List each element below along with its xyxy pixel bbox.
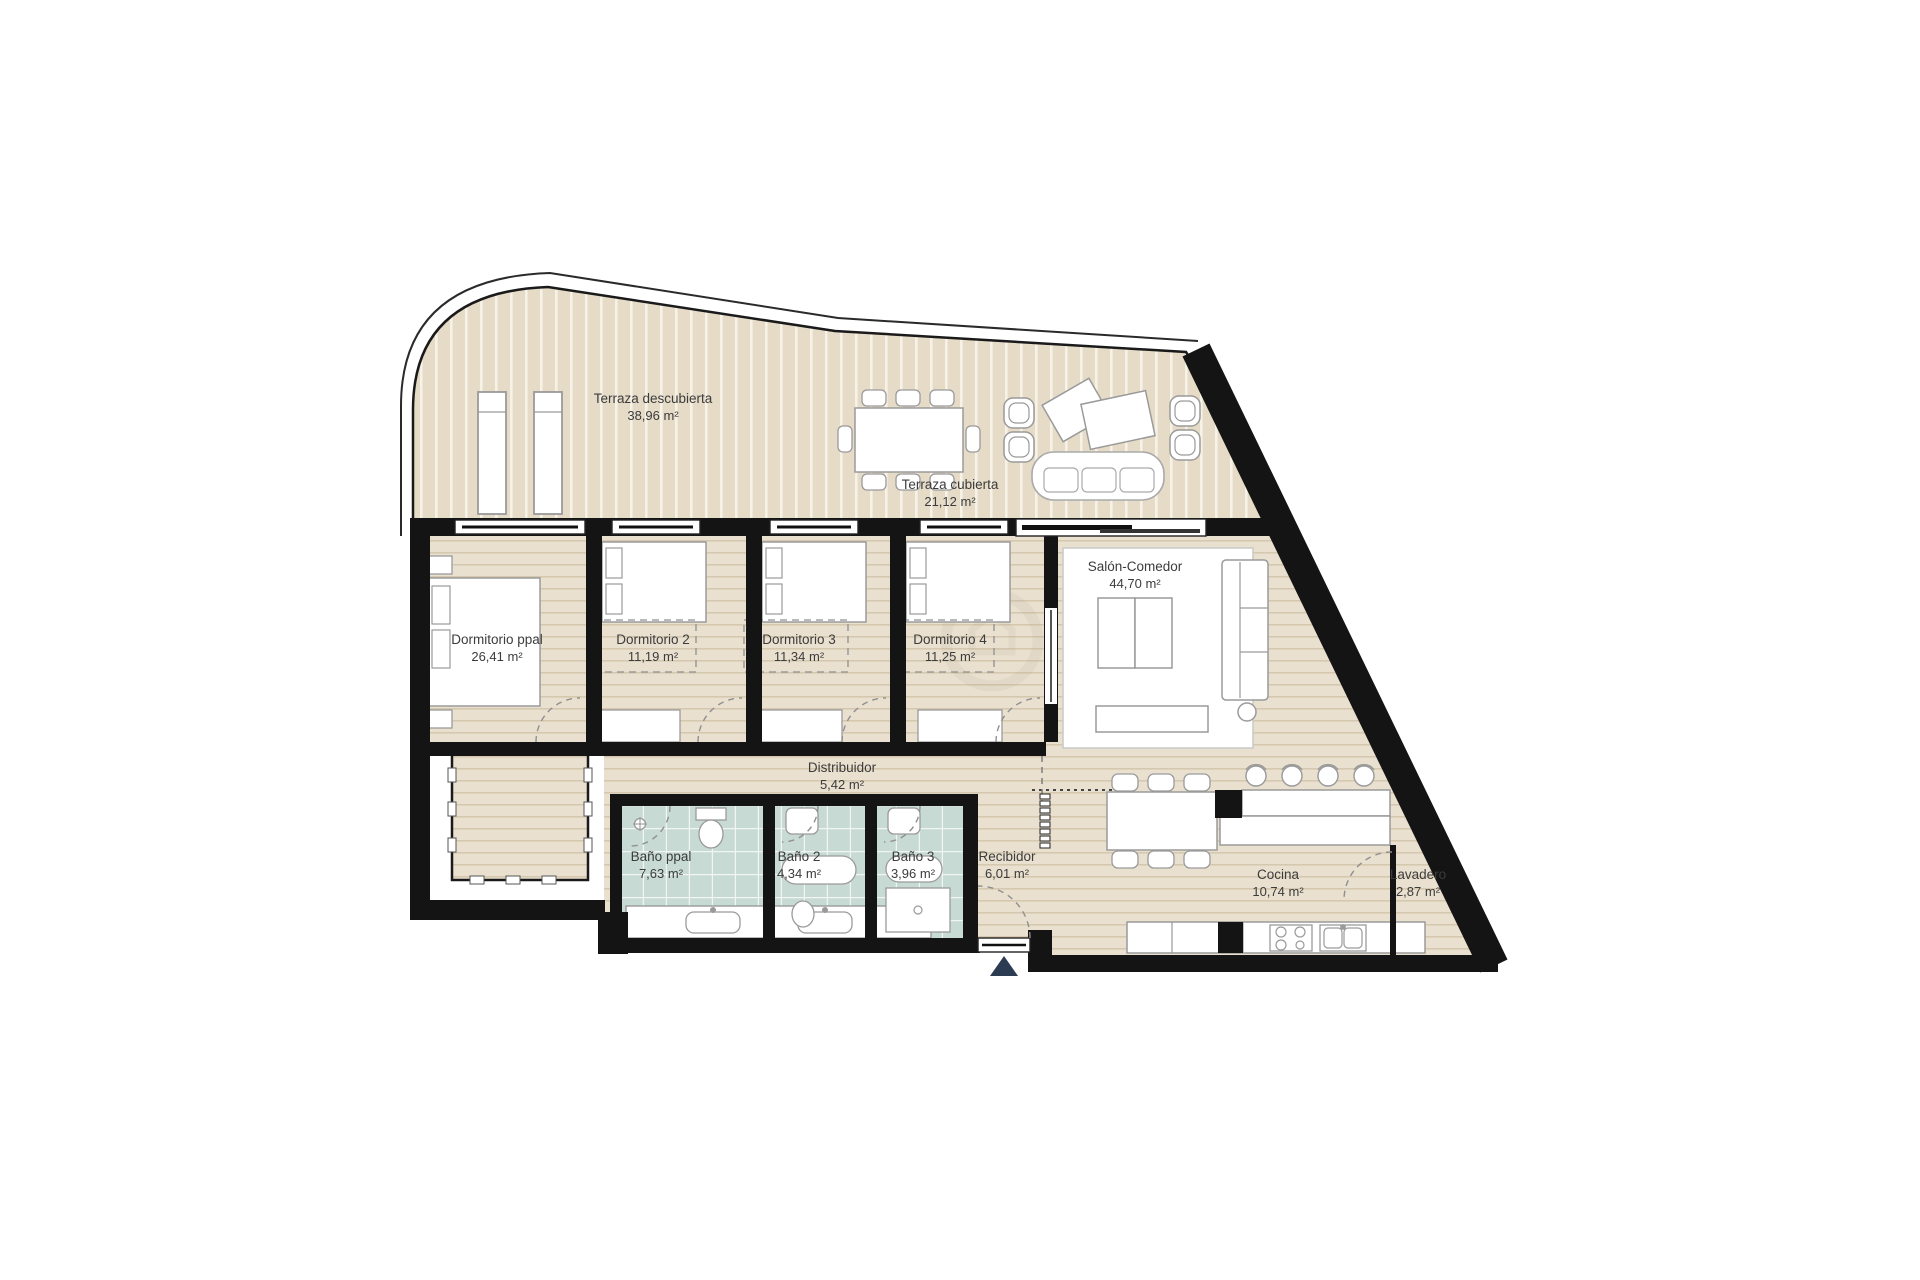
- label-dormitorio-2-name: Dormitorio 2: [616, 632, 690, 647]
- label-lavadero-area: 2,87 m²: [1396, 884, 1441, 899]
- bar-counter-top: [1242, 790, 1390, 816]
- pillow: [910, 584, 926, 614]
- pillow: [432, 586, 450, 624]
- dining-chair: [1112, 774, 1138, 791]
- sun-lounger: [534, 392, 562, 514]
- label-dormitorio-2-area: 11,19 m²: [628, 649, 679, 664]
- pillow: [606, 584, 622, 614]
- floor-plan-drawing: Terraza descubierta 38,96 m² Terraza cub…: [0, 0, 1920, 1280]
- sink-b3: [888, 808, 920, 834]
- entrance-door: [978, 938, 1030, 952]
- tv-sideboard: [1096, 706, 1208, 732]
- label-bano-2-area: 4,34 m²: [777, 866, 822, 881]
- wardrobe-d4: [918, 710, 1002, 742]
- dining-table: [1107, 792, 1217, 850]
- floor-lamp: [1238, 703, 1256, 721]
- window-d4: [920, 520, 1008, 534]
- terrace-chair: [966, 426, 980, 452]
- wall-bedrooms-bottom: [428, 742, 1046, 756]
- wall-b2-b3: [865, 806, 877, 938]
- toilet-tank: [696, 808, 726, 820]
- label-bano-3-area: 3,96 m²: [891, 866, 936, 881]
- double-vanity: [626, 906, 931, 938]
- window-d3: [770, 520, 858, 534]
- pillow: [606, 548, 622, 578]
- dining-chair: [1112, 851, 1138, 868]
- toilet-bowl: [699, 820, 723, 848]
- salon-furniture: [1063, 548, 1268, 748]
- pillow: [766, 548, 782, 578]
- sofa: [1222, 560, 1268, 700]
- courtyard: [430, 748, 604, 904]
- label-distribuidor-area: 5,42 m²: [820, 777, 865, 792]
- bar-counter: [1220, 816, 1390, 845]
- label-cocina-name: Cocina: [1257, 867, 1300, 882]
- label-lavadero-name: Lavadero: [1390, 867, 1446, 882]
- label-salon-comedor-area: 44,70 m²: [1109, 576, 1161, 591]
- label-dormitorio-4-area: 11,25 m²: [925, 649, 976, 664]
- coffee-table-right: [1135, 598, 1172, 668]
- basin: [686, 912, 740, 933]
- wall-b1-b2: [763, 806, 775, 938]
- label-terraza-cubierta-area: 21,12 m²: [924, 494, 976, 509]
- wall-ppal-d2: [586, 536, 602, 756]
- wall-d2-d3: [746, 536, 762, 756]
- label-dormitorio-ppal-name: Dormitorio ppal: [451, 632, 543, 647]
- label-distribuidor-name: Distribuidor: [808, 760, 877, 775]
- label-salon-comedor-name: Salón-Comedor: [1088, 559, 1183, 574]
- label-recibidor-name: Recibidor: [978, 849, 1036, 864]
- label-bano-ppal-name: Baño ppal: [631, 849, 692, 864]
- terrace-dining-table: [855, 408, 963, 472]
- dining-chair: [1148, 774, 1174, 791]
- label-terraza-descubierta-name: Terraza descubierta: [594, 391, 713, 406]
- courtyard-floor: [452, 750, 588, 880]
- wall-bath-left: [610, 794, 622, 938]
- wall-bath-top: [610, 794, 978, 806]
- wall-counter-block: [1218, 922, 1243, 953]
- pillow: [910, 548, 926, 578]
- label-dormitorio-ppal-area: 26,41 m²: [471, 649, 523, 664]
- toilet-b2: [792, 901, 814, 927]
- label-recibidor-area: 6,01 m²: [985, 866, 1030, 881]
- label-dormitorio-4-name: Dormitorio 4: [913, 632, 987, 647]
- dining-chair: [1184, 851, 1210, 868]
- coffee-table-left: [1098, 598, 1135, 668]
- sliding-door-salon: [1045, 608, 1057, 704]
- label-dormitorio-3-name: Dormitorio 3: [762, 632, 836, 647]
- pillow: [766, 584, 782, 614]
- window-ppal: [455, 520, 585, 534]
- terrace-chair: [862, 474, 886, 490]
- wardrobe-d2: [596, 710, 680, 742]
- window-d2: [612, 520, 700, 534]
- wall-lavadero: [1390, 845, 1396, 957]
- pillow: [432, 630, 450, 668]
- label-bano-ppal-area: 7,63 m²: [639, 866, 684, 881]
- wall-bath-bottom: [598, 938, 980, 953]
- label-dormitorio-3-area: 11,34 m²: [774, 649, 825, 664]
- terrace-chair: [896, 390, 920, 406]
- label-bano-3-name: Baño 3: [892, 849, 935, 864]
- wall-bottom: [1040, 955, 1498, 972]
- sun-lounger: [478, 392, 506, 514]
- floor-plan-page: Terraza descubierta 38,96 m² Terraza cub…: [0, 0, 1920, 1280]
- dining-chair: [1148, 851, 1174, 868]
- terrace-chair: [838, 426, 852, 452]
- sink-b2: [786, 808, 818, 834]
- nightstand: [428, 556, 452, 574]
- wall-kitchen-block: [1215, 790, 1242, 818]
- label-bano-2-name: Baño 2: [778, 849, 821, 864]
- dining-chair: [1184, 774, 1210, 791]
- window-salon-slider: [1016, 519, 1206, 536]
- terrace-chair: [930, 390, 954, 406]
- wall-b3-right: [963, 794, 978, 952]
- wall-left: [410, 518, 430, 920]
- label-terraza-cubierta-name: Terraza cubierta: [902, 477, 999, 492]
- label-cocina-area: 10,74 m²: [1252, 884, 1304, 899]
- nightstand: [428, 710, 452, 728]
- wardrobe-d3: [758, 710, 842, 742]
- label-terraza-descubierta-area: 38,96 m²: [627, 408, 679, 423]
- wall-d3-d4: [890, 536, 906, 756]
- terrace-chair: [862, 390, 886, 406]
- wall-bottom-left: [410, 900, 605, 920]
